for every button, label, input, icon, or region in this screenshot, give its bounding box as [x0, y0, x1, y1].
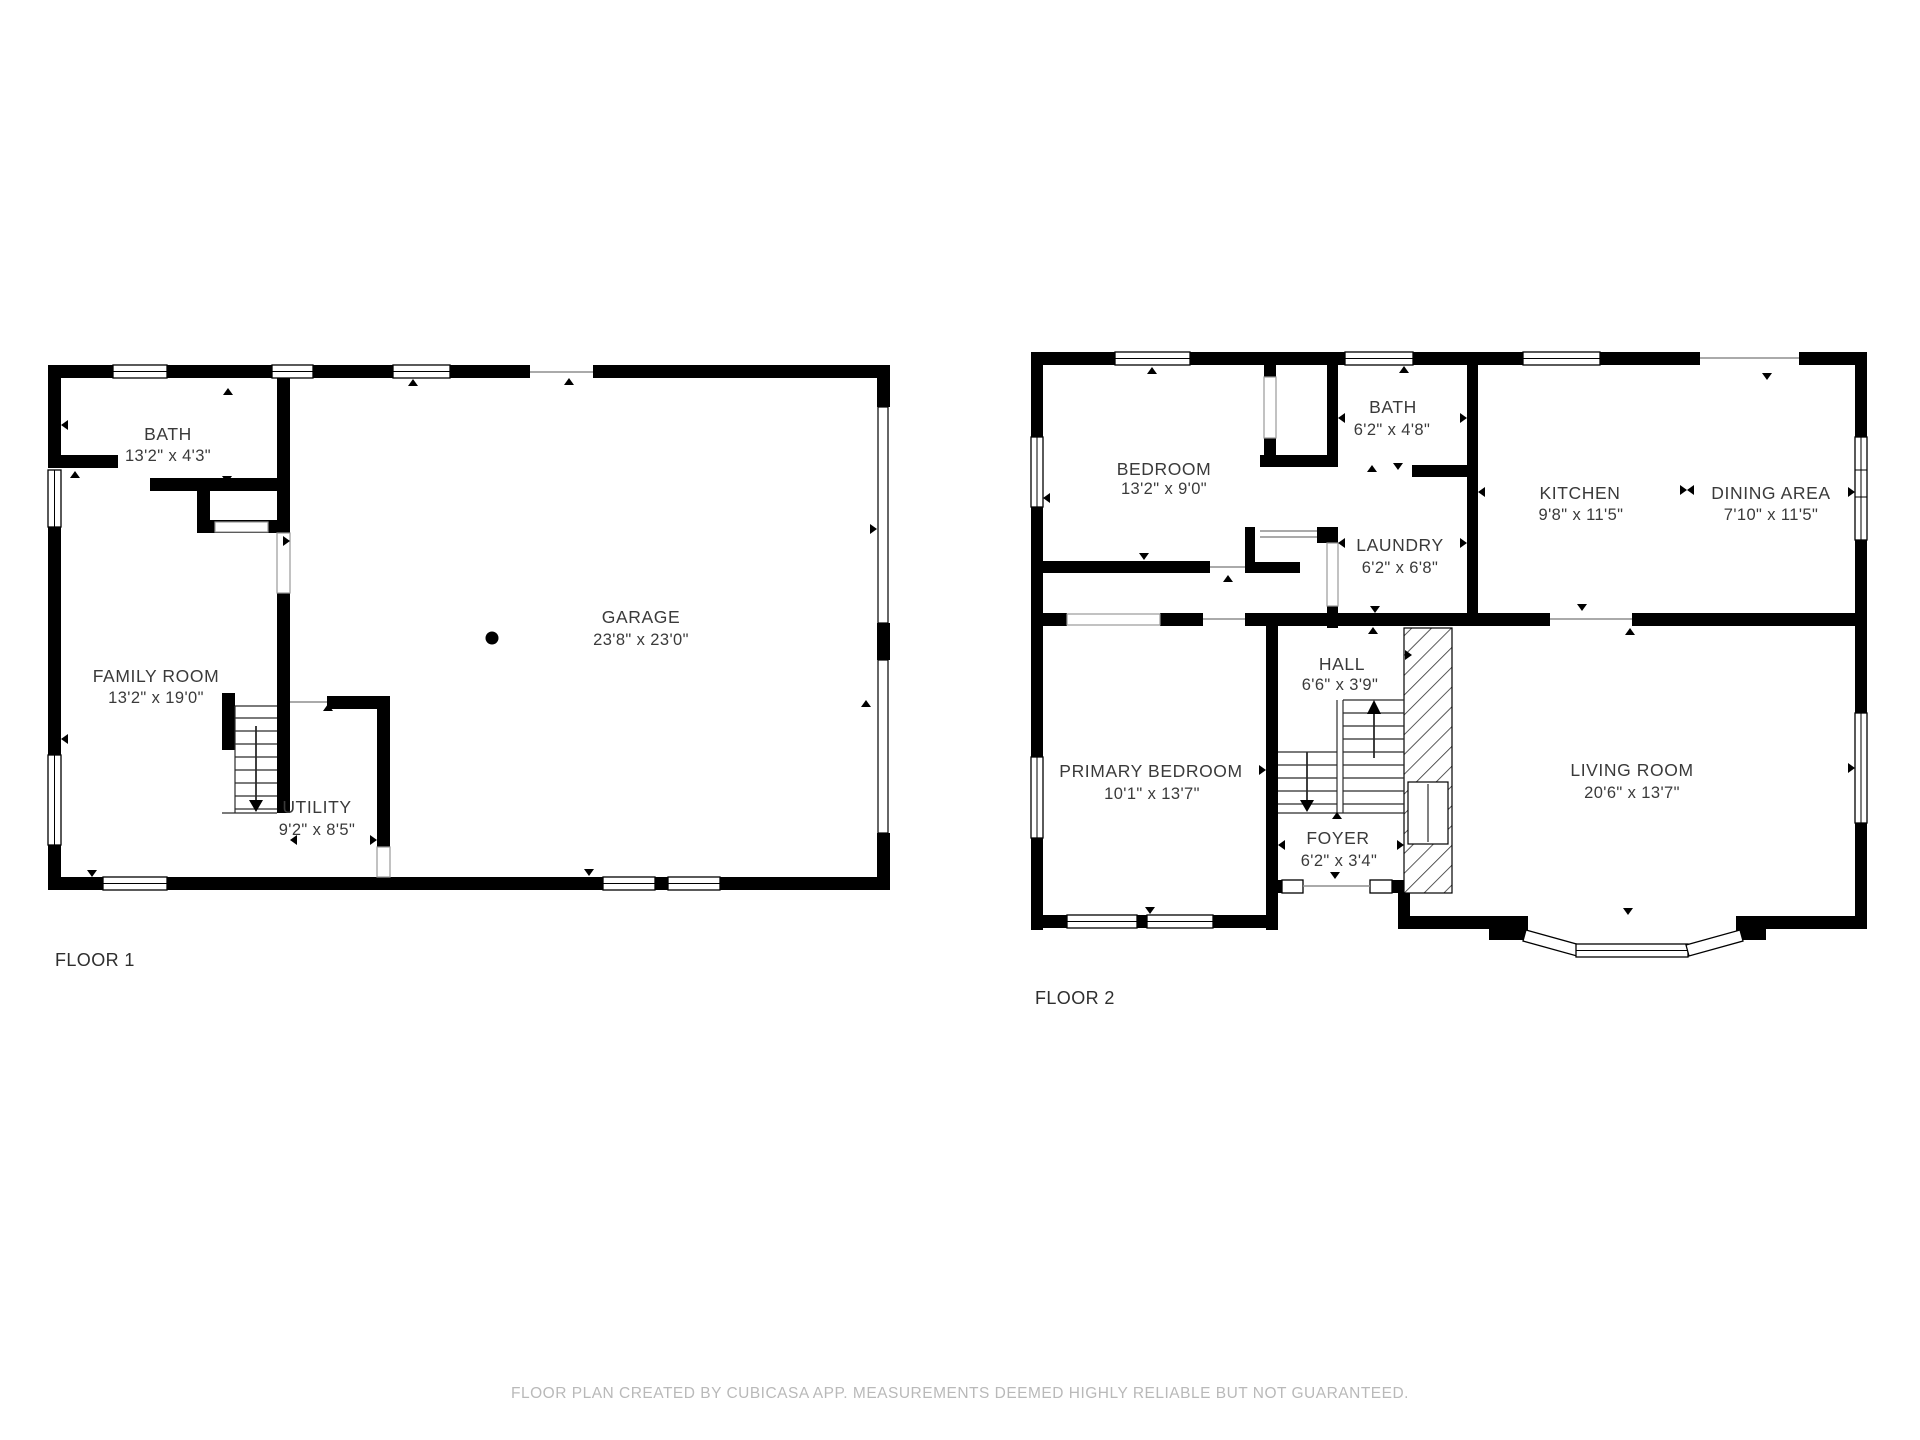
room-dims-foyer: 6'2" x 3'4"	[1301, 852, 1378, 870]
room-dims-laundry: 6'2" x 6'8"	[1362, 559, 1439, 577]
floor2-plan: BEDROOM 13'2" x 9'0" BATH 6'2" x 4'8" LA…	[1031, 352, 1867, 1008]
room-dims-bath-f1: 13'2" x 4'3"	[125, 447, 211, 465]
footer-disclaimer: FLOOR PLAN CREATED BY CUBICASA APP. MEAS…	[511, 1385, 1409, 1402]
floor2-door-openings	[1067, 377, 1338, 625]
floor2-stairs-up-arrow	[1367, 700, 1381, 714]
stairwell-hatch-band	[1404, 628, 1452, 893]
room-dims-dining-area: 7'10" x 11'5"	[1724, 506, 1818, 524]
room-label-bath-f1: BATH	[144, 424, 192, 444]
room-dims-bath-f2: 6'2" x 4'8"	[1354, 421, 1431, 439]
room-dims-family-room: 13'2" x 19'0"	[108, 689, 204, 707]
room-label-family-room: FAMILY ROOM	[93, 666, 220, 686]
floorplan-page: BATH 13'2" x 4'3" FAMILY ROOM 13'2" x 19…	[0, 0, 1920, 1440]
floor1-stairs-down-arrow	[249, 800, 263, 812]
kitchen-dining-divider-icon	[1680, 485, 1694, 495]
garage-column-dot	[486, 632, 499, 645]
room-dims-hall: 6'6" x 3'9"	[1302, 676, 1379, 694]
room-dims-primary-bedroom: 10'1" x 13'7"	[1104, 785, 1200, 803]
room-label-laundry: LAUNDRY	[1356, 535, 1444, 555]
room-dims-utility: 9'2" x 8'5"	[279, 821, 356, 839]
floor1-threshold-lines	[290, 372, 593, 702]
floor2-label: FLOOR 2	[1035, 988, 1115, 1008]
room-dims-bedroom: 13'2" x 9'0"	[1121, 480, 1207, 498]
floorplan-canvas: BATH 13'2" x 4'3" FAMILY ROOM 13'2" x 19…	[0, 0, 1920, 1440]
room-label-utility: UTILITY	[282, 797, 351, 817]
room-label-foyer: FOYER	[1306, 828, 1369, 848]
room-dims-kitchen: 9'8" x 11'5"	[1539, 506, 1624, 524]
floor1-label: FLOOR 1	[55, 950, 135, 970]
floor1-garage-doors	[878, 407, 888, 833]
room-label-hall: HALL	[1319, 654, 1365, 674]
room-label-living-room: LIVING ROOM	[1570, 760, 1693, 780]
room-dims-living-room: 20'6" x 13'7"	[1584, 784, 1680, 802]
floor2-stairs	[1278, 700, 1404, 813]
floor1-plan: BATH 13'2" x 4'3" FAMILY ROOM 13'2" x 19…	[48, 365, 890, 970]
room-label-kitchen: KITCHEN	[1539, 483, 1620, 503]
room-label-bedroom: BEDROOM	[1117, 459, 1212, 479]
floor2-stairs-down-arrow	[1300, 800, 1314, 812]
room-label-bath-f2: BATH	[1369, 397, 1417, 417]
room-label-dining-area: DINING AREA	[1711, 483, 1830, 503]
room-dims-garage: 23'8" x 23'0"	[593, 631, 689, 649]
room-label-garage: GARAGE	[602, 607, 680, 627]
living-room-bay-window	[1523, 930, 1743, 957]
room-label-primary-bedroom: PRIMARY BEDROOM	[1059, 761, 1242, 781]
